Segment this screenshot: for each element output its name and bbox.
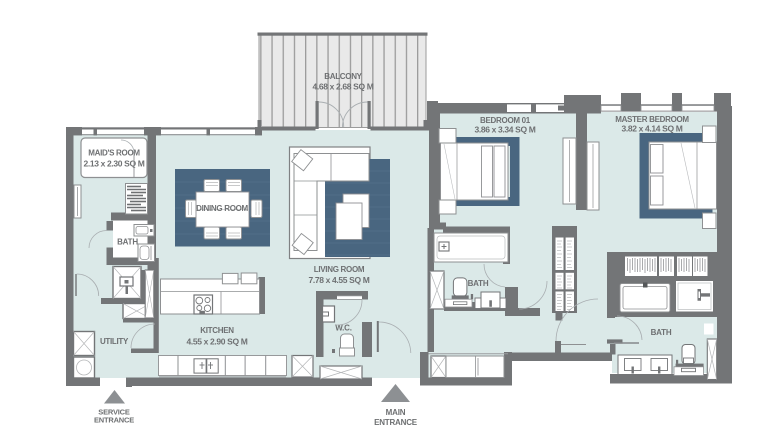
svg-text:7.78 x 4.55 SQ M: 7.78 x 4.55 SQ M <box>308 275 369 285</box>
svg-text:ENTRANCE: ENTRANCE <box>374 418 418 427</box>
svg-text:BALCONY: BALCONY <box>324 72 362 81</box>
svg-text:UTILITY: UTILITY <box>100 337 129 346</box>
svg-text:3.86 x 3.34 SQ M: 3.86 x 3.34 SQ M <box>474 125 535 135</box>
svg-text:4.68 x 2.68 SQ M: 4.68 x 2.68 SQ M <box>312 82 373 92</box>
svg-text:MAID'S ROOM: MAID'S ROOM <box>88 149 140 158</box>
svg-text:MASTER BEDROOM: MASTER BEDROOM <box>615 115 689 124</box>
svg-text:3.82 x 4.14 SQ M: 3.82 x 4.14 SQ M <box>621 124 682 134</box>
svg-text:BATH: BATH <box>651 328 672 337</box>
svg-text:DINING ROOM: DINING ROOM <box>196 204 248 213</box>
svg-text:BATH: BATH <box>468 279 489 288</box>
svg-text:2.13 x 2.30 SQ M: 2.13 x 2.30 SQ M <box>83 159 144 169</box>
svg-text:BATH: BATH <box>117 238 138 247</box>
svg-text:KITCHEN: KITCHEN <box>200 326 234 335</box>
svg-text:ENTRANCE: ENTRANCE <box>94 416 134 425</box>
svg-text:LIVING ROOM: LIVING ROOM <box>314 265 365 274</box>
svg-text:MAIN: MAIN <box>386 408 406 417</box>
svg-text:BEDROOM 01: BEDROOM 01 <box>480 116 531 125</box>
svg-text:4.55 x 2.90 SQ M: 4.55 x 2.90 SQ M <box>186 337 247 347</box>
